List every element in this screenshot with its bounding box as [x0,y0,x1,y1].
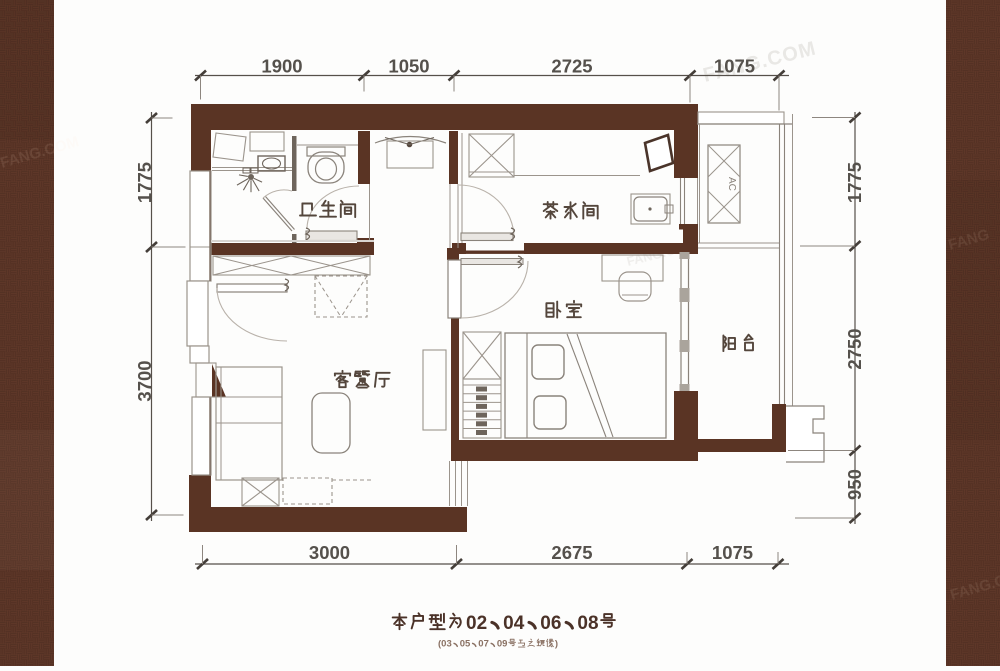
svg-text:1075: 1075 [712,542,753,563]
svg-text:): ) [555,639,558,650]
svg-text:950: 950 [844,469,865,500]
svg-text:06: 06 [540,613,561,634]
svg-text:1775: 1775 [134,162,155,203]
svg-text:3700: 3700 [134,360,155,401]
svg-text:1775: 1775 [844,162,865,203]
svg-text:1900: 1900 [261,56,302,77]
svg-text:05: 05 [460,639,471,650]
svg-text:1050: 1050 [388,56,429,77]
svg-text:3000: 3000 [309,542,350,563]
svg-text:2675: 2675 [551,542,592,563]
svg-text:AC: AC [726,177,737,191]
svg-text:08: 08 [577,613,598,634]
svg-text:03: 03 [441,639,452,650]
svg-text:07: 07 [478,639,489,650]
svg-text:2725: 2725 [551,56,592,77]
svg-text:1075: 1075 [714,56,755,77]
svg-text:02: 02 [466,613,487,634]
svg-text:04: 04 [503,613,525,634]
svg-text:09: 09 [497,639,508,650]
svg-text:2750: 2750 [844,328,865,369]
